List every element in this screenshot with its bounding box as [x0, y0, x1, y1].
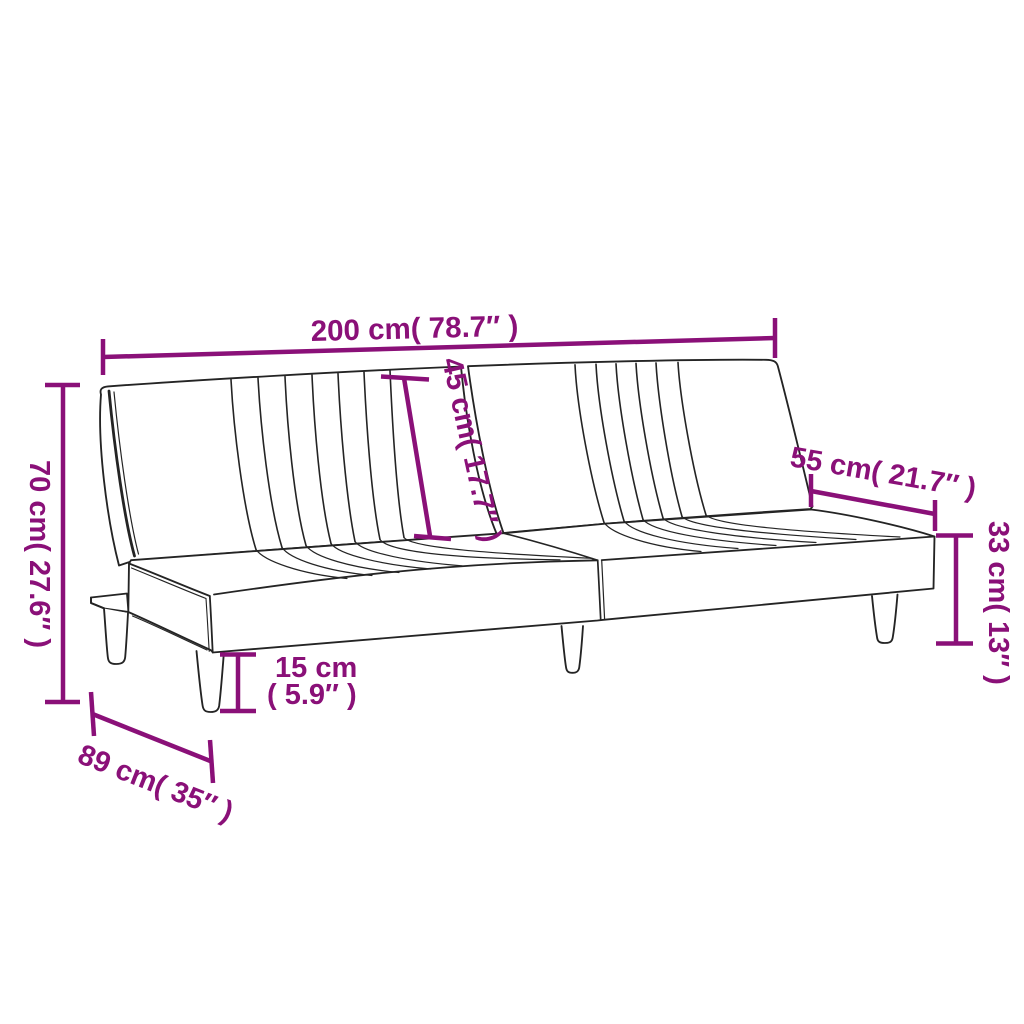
svg-text:55 cm( 21.7″ ): 55 cm( 21.7″ ): [788, 441, 979, 505]
svg-text:33 cm( 13″ ): 33 cm( 13″ ): [982, 521, 1014, 685]
svg-text:( 5.9″ ): ( 5.9″ ): [267, 679, 357, 711]
svg-text:70 cm( 27.6″ ): 70 cm( 27.6″ ): [23, 460, 55, 648]
svg-text:200 cm( 78.7″ ): 200 cm( 78.7″ ): [310, 310, 518, 348]
